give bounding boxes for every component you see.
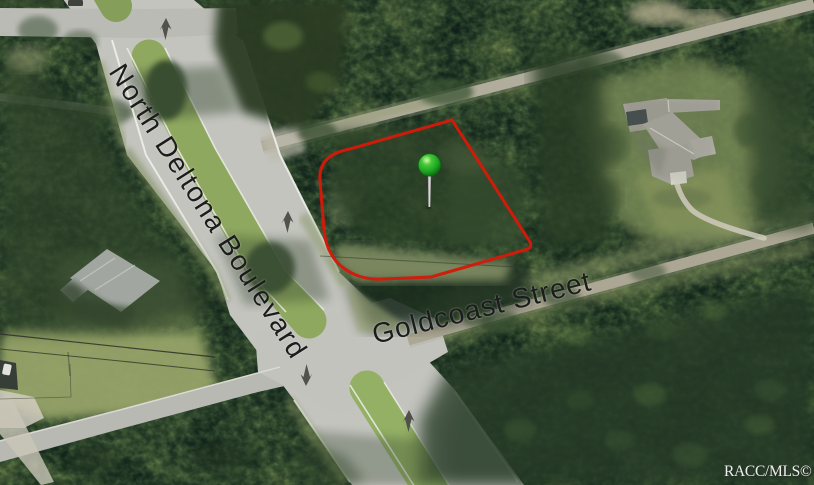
svg-text:RACC/MLS©: RACC/MLS© <box>724 463 812 480</box>
